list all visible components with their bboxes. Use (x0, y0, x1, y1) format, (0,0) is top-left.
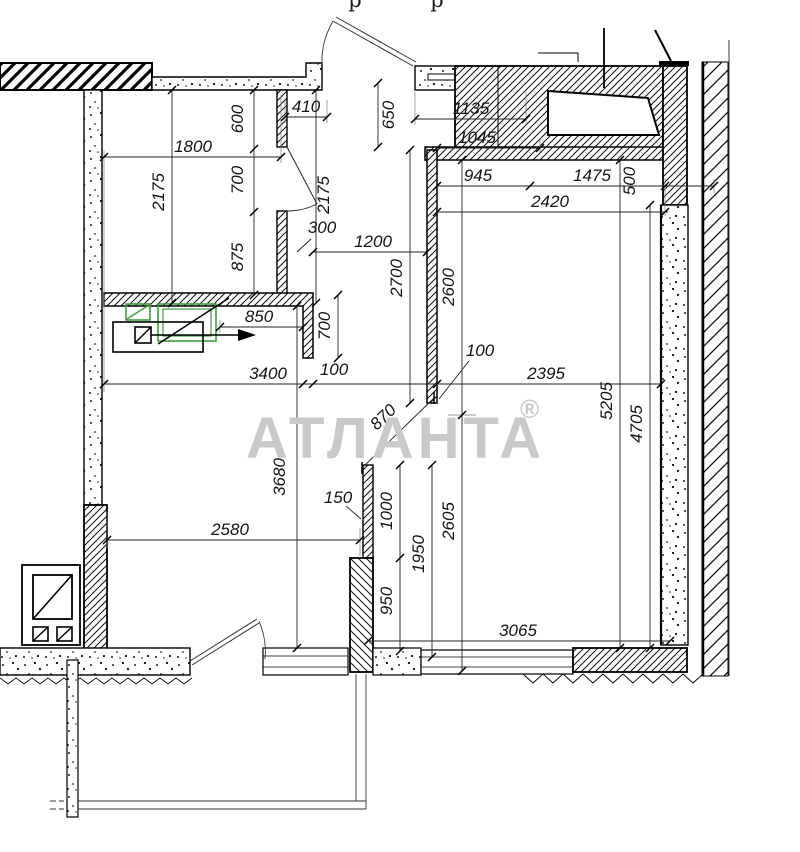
wall-left (84, 90, 102, 505)
wall-top-left-block (0, 63, 152, 90)
wall-bottom-left (0, 648, 190, 675)
leader-150 (346, 506, 361, 519)
dim-945: 945 (464, 166, 493, 185)
dim-2395: 2395 (526, 364, 565, 383)
wall-kitchen-top (152, 63, 322, 90)
cropped-letter-left: р (348, 0, 361, 12)
dim-1000: 1000 (377, 492, 396, 530)
watermark-registered-icon: ® (520, 394, 539, 424)
electrical-panel (22, 565, 80, 645)
dim-950: 950 (377, 586, 396, 615)
dimension-labels: 410 600 1800 2175 700 2175 875 300 1200 … (149, 97, 646, 640)
pier-bottom-center (350, 558, 373, 672)
kitchen-unit-green-small-diagonal (127, 305, 149, 319)
watermark: АТЛАНТА ® (246, 394, 545, 471)
dim-300: 300 (308, 218, 337, 237)
balcony-side-wall (67, 660, 78, 817)
top-step-mark (538, 53, 578, 62)
dim-1475: 1475 (573, 166, 611, 185)
dim-700-door: 700 (228, 165, 247, 194)
wall-kitchen-living (104, 293, 313, 358)
dim-1135: 1135 (453, 99, 490, 118)
dim-500: 500 (620, 166, 639, 195)
floor-plan-drawing: 410 600 1800 2175 700 2175 875 300 1200 … (0, 0, 800, 852)
dim-2600: 2600 (439, 268, 458, 307)
wall-bottom-thin (363, 465, 373, 558)
wall-bottom-left-insulation (0, 678, 192, 684)
wall-living-top (425, 147, 663, 160)
dim-2580: 2580 (210, 520, 249, 539)
dim-600: 600 (228, 104, 247, 133)
dim-3065: 3065 (499, 621, 537, 640)
balcony-sidelight (263, 648, 348, 675)
dim-2420: 2420 (530, 192, 569, 211)
balcony (50, 660, 366, 817)
dim-1200: 1200 (354, 232, 392, 251)
watermark-text: АТЛАНТА (246, 406, 545, 471)
window-bottom (421, 650, 573, 674)
kitchen-door-arc (287, 204, 317, 211)
floor-plan-page: 410 600 1800 2175 700 2175 875 300 1200 … (0, 0, 800, 852)
dim-700-stub: 700 (315, 311, 334, 340)
cropped-letter-right: р (430, 0, 443, 12)
cropped-top-text: р р (348, 0, 443, 12)
leader-100-wall (439, 361, 469, 399)
dim-5205: 5205 (597, 382, 616, 420)
wall-bottom-right-insulation (523, 674, 703, 683)
dim-875: 875 (228, 242, 247, 271)
dim-2700: 2700 (387, 259, 406, 298)
pier-top-right-cap (659, 61, 689, 66)
wall-neighbor (702, 62, 728, 676)
dim-4705: 4705 (627, 405, 646, 443)
dim-2175-left: 2175 (149, 173, 168, 212)
wall-right-outer (661, 205, 688, 645)
kitchen-door-leaf (287, 147, 317, 204)
balcony-door-leaf-a (190, 619, 257, 661)
entrance-door-arc (322, 21, 333, 64)
wall-left-lower-pier (84, 505, 107, 672)
entrance-door-leaf-a (333, 21, 413, 66)
dim-2605: 2605 (439, 502, 458, 541)
kitchen-unit-arrow-head (238, 329, 256, 341)
dim-1045: 1045 (458, 128, 496, 147)
entrance-door-leaf-b (336, 17, 416, 62)
dim-100-wall: 100 (466, 341, 495, 360)
dimension-extension-lines (104, 92, 714, 556)
dim-2175-right: 2175 (314, 176, 333, 215)
dim-1800: 1800 (174, 137, 212, 156)
sill-right-of-pier (373, 648, 421, 675)
dim-3400: 3400 (249, 364, 287, 383)
dim-850: 850 (245, 307, 274, 326)
balcony-door-leaf-b (192, 623, 259, 665)
wall-kitchen-right-upper (277, 90, 287, 147)
vent-shaft-duct (548, 91, 659, 135)
dim-100-stub: 100 (320, 360, 349, 379)
dim-410: 410 (292, 97, 321, 116)
top-leader-slanted (655, 30, 671, 61)
dim-650: 650 (379, 100, 398, 129)
dim-1950: 1950 (409, 535, 428, 573)
wall-bottom-right-block (573, 648, 687, 672)
kitchen-unit-box-diagonal (135, 327, 151, 343)
leader-300 (297, 239, 311, 252)
wall-kitchen-right-lower (277, 211, 287, 295)
dim-150: 150 (324, 488, 353, 507)
